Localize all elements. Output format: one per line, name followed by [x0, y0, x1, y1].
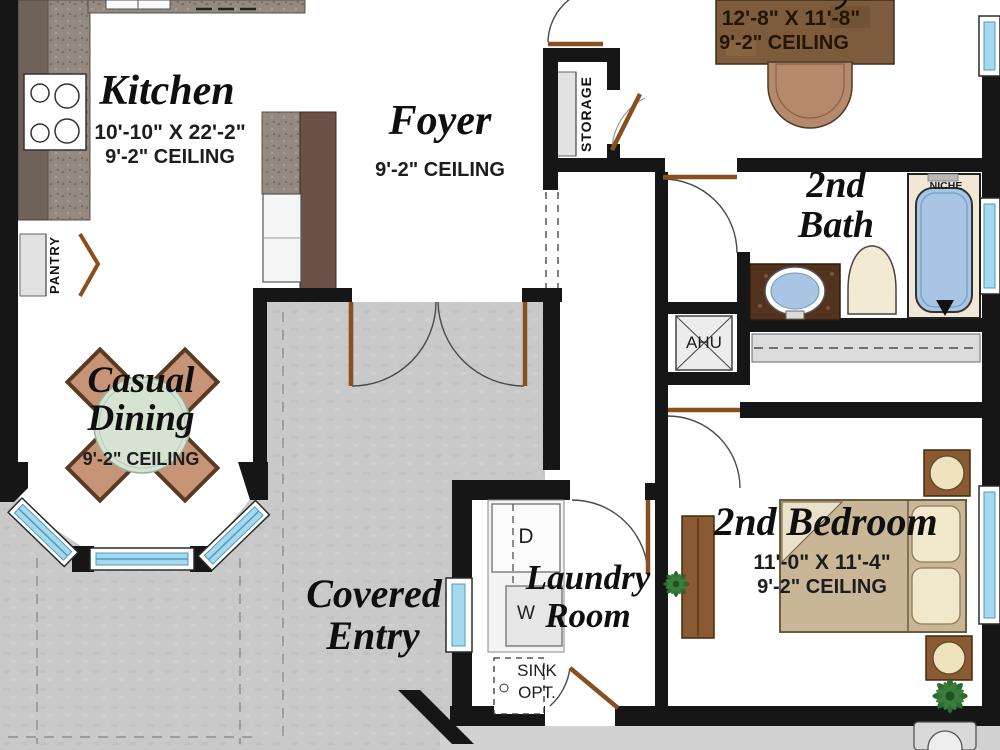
wall-entry-right — [522, 288, 562, 302]
sink-basin — [771, 273, 819, 309]
bay-window-center — [90, 548, 194, 570]
kitchen-label: Kitchen — [92, 70, 242, 113]
kitchen-dimensions: 10'-10" X 22'-2" — [85, 122, 255, 143]
sink-faucet — [786, 311, 804, 319]
bedroom-door — [668, 410, 740, 488]
den-ceiling: 9'-2" CEILING — [708, 33, 860, 53]
wall-ahu-bottom — [655, 372, 750, 385]
bedroom-dimensions: 11'-0" X 11'-4" — [736, 552, 908, 573]
covered-entry-label-line2: Entry — [290, 616, 456, 657]
niche-label: NICHE — [920, 181, 972, 192]
dresser-plant — [663, 571, 689, 597]
patio-grill — [914, 722, 976, 750]
wall-ahu-top — [655, 302, 750, 314]
wall-foyer-right-lower — [543, 302, 560, 470]
bath-door — [663, 177, 737, 253]
tall-cabinet — [300, 112, 336, 290]
sink-opt-label-line1: SINK — [508, 662, 566, 679]
lamp-top — [930, 456, 964, 490]
storage-door — [612, 94, 645, 150]
paving-upper — [455, 302, 545, 480]
kitchen-ceiling: 9'-2" CEILING — [85, 147, 255, 167]
storage-shelf — [556, 72, 576, 156]
wall-right-upper — [982, 72, 1000, 202]
wall-bedroom-top — [740, 402, 982, 418]
pillow-bottom — [912, 568, 960, 624]
dining-label-line1: Casual — [70, 362, 212, 400]
wall-bedroom-top-left — [655, 402, 668, 418]
wall-hall-left — [655, 172, 668, 402]
dryer-label: D — [500, 526, 552, 547]
wall-left-outer — [0, 0, 18, 466]
bedroom-label: 2nd Bedroom — [698, 502, 954, 543]
bath-window — [979, 198, 1000, 294]
pantry-shelf — [20, 234, 46, 296]
dining-ceiling: 9'-2" CEILING — [68, 450, 214, 468]
pantry-bifold-door — [80, 234, 98, 296]
wall-laundry-left-upper — [452, 480, 472, 580]
paving-right — [267, 302, 455, 750]
hall-closet — [752, 334, 980, 362]
dining-label-line2: Dining — [63, 400, 219, 438]
wall-storage-right — [607, 62, 620, 90]
bedroom-ceiling: 9'-2" CEILING — [736, 577, 908, 597]
storage-closet — [556, 72, 576, 156]
wall-laundry-top-right — [645, 483, 668, 500]
cased-opening-foyer-hall — [546, 192, 558, 288]
cabinet-counter — [262, 112, 302, 194]
washer-label: W — [504, 604, 548, 623]
bedroom-window — [979, 486, 1000, 624]
floor-plan: Kitchen 10'-10" X 22'-2" 9'-2" CEILING F… — [0, 0, 1000, 750]
sink-opt-label-line2: OPT. — [508, 684, 566, 701]
wall-dining-right — [253, 290, 267, 466]
den-dimensions: 12'-8" X 11'-8" — [712, 8, 870, 29]
toilet — [848, 246, 896, 314]
bathtub — [916, 188, 972, 312]
wall-entry-left — [253, 288, 352, 302]
bath-label-line1: 2nd — [788, 166, 884, 205]
corner-plant — [933, 679, 968, 714]
storage-label: STORAGE — [578, 70, 604, 158]
ahu-label: AHU — [676, 334, 732, 351]
covered-entry-label-line1: Covered — [283, 574, 465, 615]
laundry-label-line1: Laundry — [512, 560, 664, 596]
lamp-bottom — [933, 642, 965, 674]
pantry-label: PANTRY — [47, 232, 73, 298]
upper-room-door — [548, 0, 603, 44]
foyer-label: Foyer — [375, 100, 505, 143]
wall-right-lower — [982, 620, 1000, 726]
wall-hall-top-left — [543, 158, 665, 172]
den-window — [979, 16, 1000, 76]
bath-label-line2: Bath — [780, 206, 892, 245]
wall-right-middle — [982, 290, 1000, 490]
foyer-ceiling: 9'-2" CEILING — [372, 160, 508, 180]
